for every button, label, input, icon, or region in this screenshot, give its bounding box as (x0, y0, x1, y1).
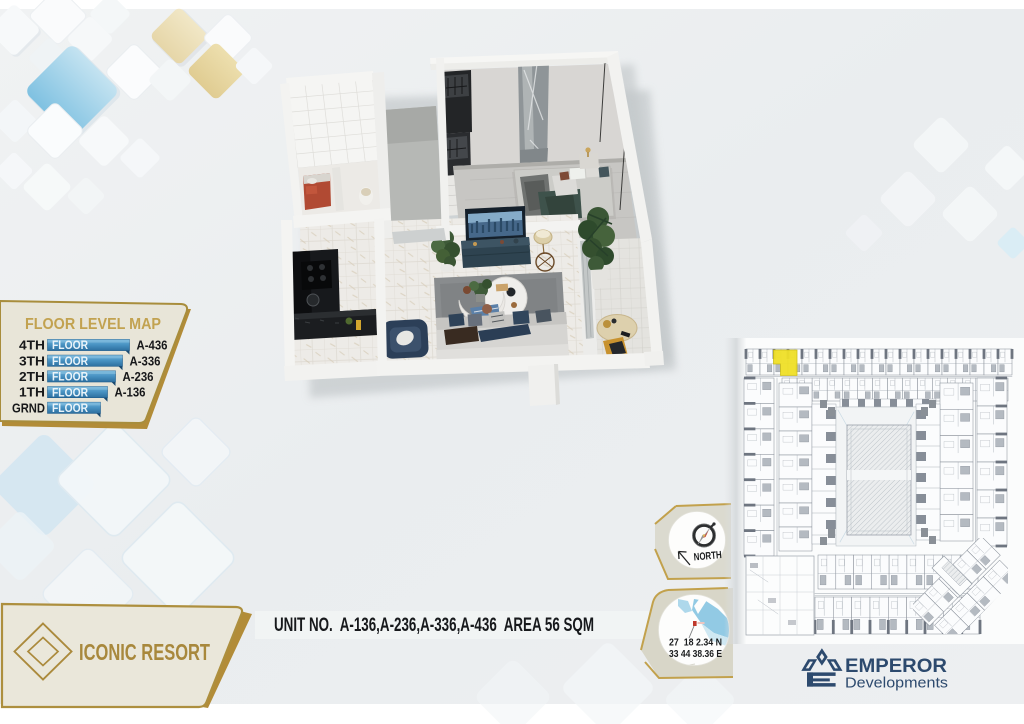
svg-text:A-136: A-136 (115, 385, 146, 400)
svg-text:NORTH: NORTH (693, 549, 722, 563)
svg-text:ICONIC RESORT: ICONIC RESORT (79, 639, 210, 665)
svg-text:FLOOR: FLOOR (52, 338, 88, 352)
svg-text:1TH: 1TH (19, 385, 45, 400)
svg-text:FLOOR: FLOOR (52, 401, 88, 415)
svg-text:A-236: A-236 (123, 369, 154, 384)
svg-text:A-436: A-436 (137, 338, 168, 353)
svg-text:GRND: GRND (12, 400, 45, 415)
svg-text:Developments: Developments (845, 675, 948, 692)
svg-text:33 44 38.36 E: 33 44 38.36 E (669, 649, 722, 660)
svg-text:4TH: 4TH (19, 338, 45, 353)
svg-text:3TH: 3TH (19, 353, 45, 368)
svg-text:27 18 2.34 N: 27 18 2.34 N (669, 638, 722, 649)
svg-text:FLOOR: FLOOR (52, 354, 88, 368)
svg-text:2TH: 2TH (19, 369, 45, 384)
svg-text:FLOOR: FLOOR (52, 370, 88, 384)
svg-text:UNIT NO. A-136,A-236,A-336,A-: UNIT NO. A-136,A-236,A-336,A-436 AREA 56… (274, 615, 594, 636)
svg-text:FLOOR: FLOOR (52, 385, 88, 399)
svg-text:FLOOR LEVEL MAP: FLOOR LEVEL MAP (25, 316, 161, 333)
svg-text:A-336: A-336 (130, 353, 161, 368)
